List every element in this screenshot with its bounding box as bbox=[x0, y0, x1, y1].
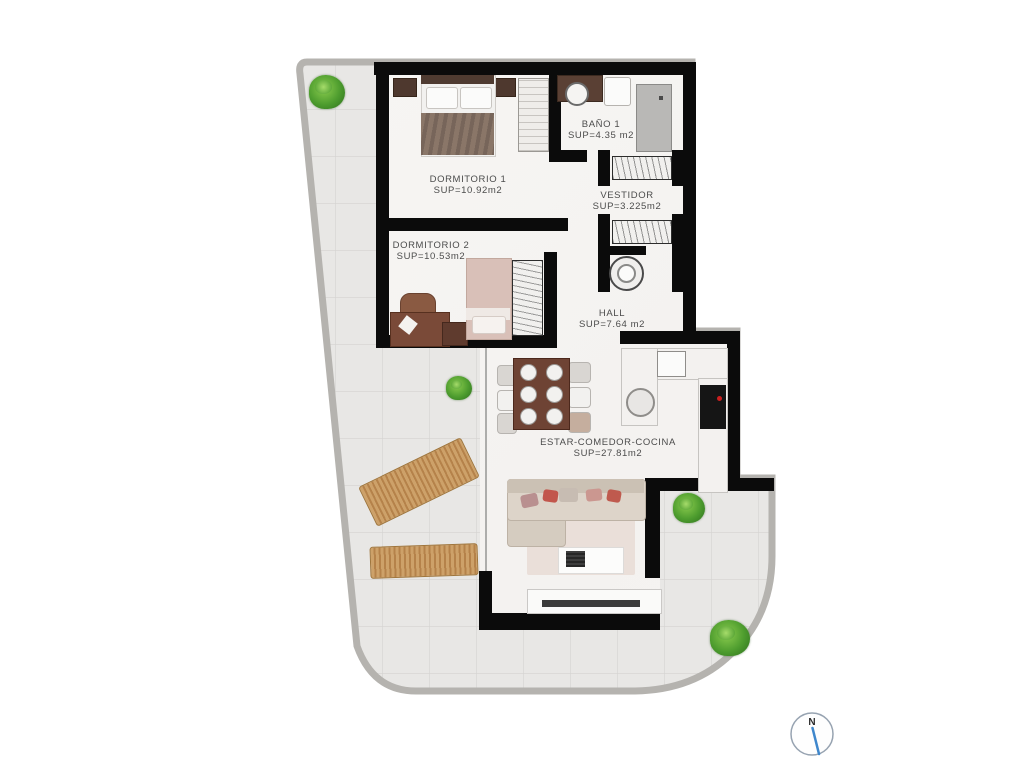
wall-living-west bbox=[479, 571, 492, 630]
bed-pillow bbox=[472, 316, 506, 334]
room-name: DORMITORIO 2 bbox=[393, 240, 470, 251]
bed-pillow bbox=[460, 87, 492, 109]
plate bbox=[520, 408, 537, 425]
dining-chair bbox=[568, 412, 591, 433]
wall-top bbox=[374, 62, 695, 75]
plate bbox=[546, 408, 563, 425]
plant bbox=[710, 620, 750, 656]
plate bbox=[520, 364, 537, 381]
room-label-estar-comedor-cocina: ESTAR-COMEDOR-COCINA SUP=27.81m2 bbox=[540, 437, 676, 459]
room-name: VESTIDOR bbox=[593, 190, 662, 201]
window-line bbox=[485, 348, 487, 572]
room-area: SUP=4.35 m2 bbox=[568, 130, 634, 141]
wall-bedroom2-east bbox=[544, 252, 557, 348]
room-label-dormitorio-1: DORMITORIO 1 SUP=10.92m2 bbox=[430, 174, 507, 196]
toilet bbox=[604, 77, 631, 106]
room-label-dormitorio-2: DORMITORIO 2 SUP=10.53m2 bbox=[393, 240, 470, 262]
wall-west bbox=[376, 62, 389, 348]
room-name: BAÑO 1 bbox=[568, 119, 634, 130]
room-name: HALL bbox=[579, 308, 645, 319]
room-label-vestidor: VESTIDOR SUP=3.225m2 bbox=[593, 190, 662, 212]
fridge bbox=[657, 351, 686, 377]
compass-north-label: N bbox=[808, 717, 815, 728]
wardrobe-vestidor-top bbox=[612, 156, 672, 180]
nightstand bbox=[442, 322, 468, 346]
compass: N bbox=[784, 704, 840, 762]
washbasin-sink bbox=[565, 82, 589, 106]
washing-machine-drum bbox=[617, 264, 636, 283]
wall-vestidor-stub-nw bbox=[598, 150, 610, 186]
room-area: SUP=3.225m2 bbox=[593, 201, 662, 212]
wall-bath-south bbox=[549, 150, 587, 162]
wall-laundry-closet bbox=[610, 246, 646, 255]
bed-blanket bbox=[421, 113, 494, 155]
floor-plan-page: DORMITORIO 1 SUP=10.92m2 DORMITORIO 2 SU… bbox=[0, 0, 1024, 768]
kitchen-sink bbox=[626, 388, 655, 417]
desk bbox=[390, 312, 450, 347]
dining-chair bbox=[568, 387, 591, 408]
plant bbox=[309, 75, 345, 109]
room-area: SUP=10.92m2 bbox=[430, 185, 507, 196]
wall-kitchen-east bbox=[727, 331, 740, 491]
wall-east-upper bbox=[683, 62, 696, 334]
room-name: DORMITORIO 1 bbox=[430, 174, 507, 185]
plate bbox=[546, 364, 563, 381]
laptop bbox=[566, 551, 585, 567]
plant bbox=[673, 493, 705, 523]
wall-bedroom-divider bbox=[376, 218, 568, 231]
nightstand bbox=[393, 78, 417, 97]
room-label-bano-1: BAÑO 1 SUP=4.35 m2 bbox=[568, 119, 634, 141]
cooktop bbox=[700, 385, 726, 429]
sun-lounger bbox=[369, 543, 478, 579]
dining-chair bbox=[568, 362, 591, 383]
wall-tv bbox=[480, 613, 660, 630]
wall-vestidor-stub-se bbox=[672, 214, 683, 292]
plate bbox=[546, 386, 563, 403]
wardrobe-bedroom2 bbox=[512, 260, 543, 336]
sofa-pillow bbox=[559, 488, 578, 502]
sofa-pillow bbox=[542, 489, 559, 503]
plant bbox=[446, 376, 472, 400]
bed-pillow bbox=[426, 87, 458, 109]
room-name: ESTAR-COMEDOR-COCINA bbox=[540, 437, 676, 448]
room-area: SUP=27.81m2 bbox=[540, 448, 676, 459]
sofa-pillow bbox=[606, 489, 622, 503]
wall-living-east bbox=[645, 478, 660, 578]
room-area: SUP=10.53m2 bbox=[393, 251, 470, 262]
wall-vestidor-stub-sw bbox=[598, 214, 610, 292]
shower bbox=[636, 84, 672, 152]
shower-drain bbox=[659, 96, 663, 100]
sofa-pillow bbox=[585, 488, 602, 502]
bed-headboard bbox=[421, 75, 494, 84]
room-area: SUP=7.64 m2 bbox=[579, 319, 645, 330]
wall-vestidor-stub-ne bbox=[672, 150, 683, 186]
wardrobe-vestidor-bottom bbox=[612, 220, 672, 244]
plate bbox=[520, 386, 537, 403]
wall-kitchen-north bbox=[620, 331, 740, 344]
room-label-hall: HALL SUP=7.64 m2 bbox=[579, 308, 645, 330]
tv bbox=[542, 600, 640, 607]
wardrobe-bedroom1 bbox=[518, 78, 549, 152]
cooktop-knob bbox=[717, 396, 722, 401]
